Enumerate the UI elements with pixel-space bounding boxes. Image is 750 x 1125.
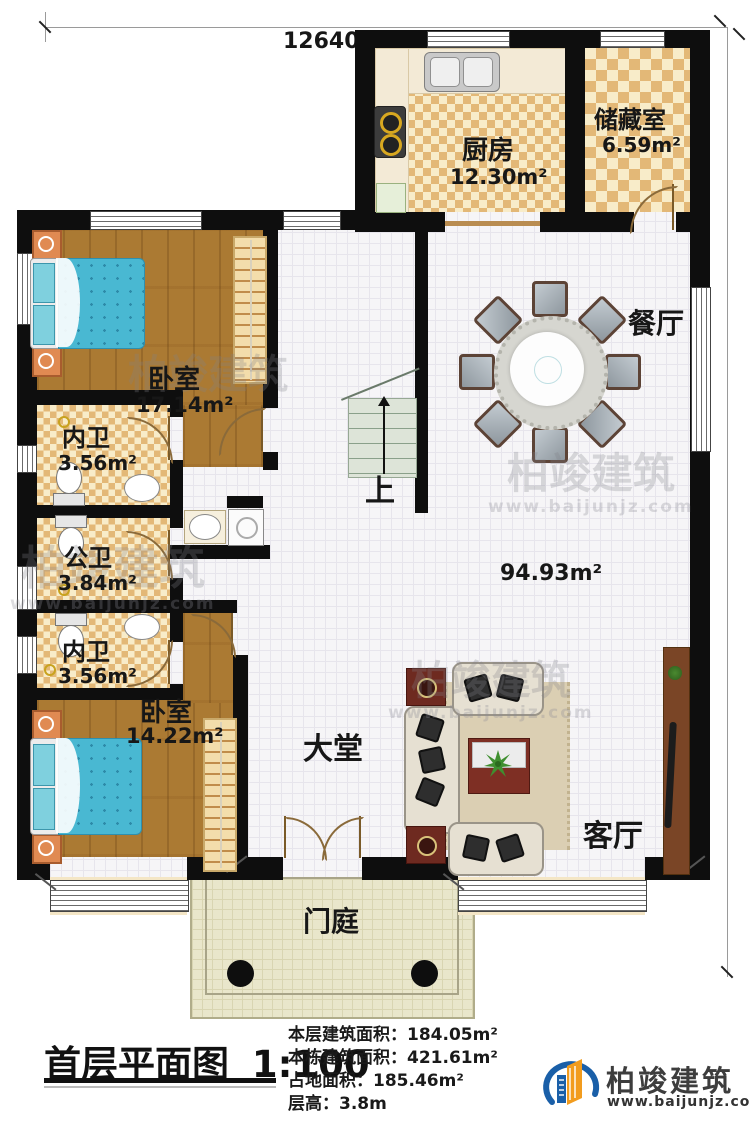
plant-icon [668,666,682,680]
storage-area: 6.59m² [602,135,681,155]
sofa-pillow [462,834,490,862]
toilet [53,493,85,506]
public-bath-area: 3.84m² [58,573,137,593]
vanity-sink [189,514,221,540]
stat-label: 占地面积： [288,1071,373,1091]
wall [170,460,183,528]
stat-label: 本栋建筑面积： [288,1048,407,1068]
dining-table-center [534,356,562,384]
dining-chair [459,354,495,390]
watermark: 柏竣建筑 www.baijunjz.com [388,658,594,724]
brand-logo-icon [540,1052,604,1116]
bathroom-sink [124,614,160,640]
nightstand [32,347,62,377]
porch-column [227,960,254,987]
open-area-label: 94.93m² [500,563,602,585]
sofa-pillow [418,746,446,774]
kitchen-sink-basin [463,57,493,87]
end-table [406,826,446,864]
watermark-url: www.baijunjz.com [10,595,216,615]
watermark-text: 柏竣建筑 [388,658,594,704]
watermark-url: www.baijunjz.com [388,704,594,724]
dimension-top-label: 12640 [283,31,360,53]
stat-value: 185.46m² [373,1071,464,1091]
title-underline-thin [44,1086,276,1088]
floor-plan-canvas: 12640 17640 [0,0,750,1125]
stat-row: 本栋建筑面积：421.61m² [288,1047,498,1070]
bay-window [458,880,647,912]
ensuite2-area: 3.56m² [58,666,137,686]
wall [17,505,183,518]
window [691,287,711,452]
window [90,211,202,230]
stat-value: 421.61m² [407,1048,498,1068]
dining-chair [532,281,568,317]
dining-label: 餐厅 [628,310,684,338]
wall [565,48,585,212]
stairs-arrow-head [378,396,390,406]
bedroom2-label: 卧室 [140,700,192,726]
kitchen-label: 厨房 [462,138,514,164]
watermark-url: www.baijunjz.com [488,498,694,518]
kitchen-sink-basin [430,57,460,87]
storage-label: 储藏室 [594,108,666,132]
ensuite1-label: 内卫 [62,426,110,450]
porch-label: 门庭 [303,908,359,936]
stat-value: 184.05m² [407,1025,498,1045]
dimension-tick [733,28,746,41]
public-bath-label: 公卫 [64,546,112,570]
stove-burner [380,112,402,134]
dining-chair [605,354,641,390]
stairs-up-label: 上 [365,477,395,507]
top-dimension-line [45,27,728,28]
washing-machine-drum [236,517,258,539]
stat-value: 3.8m [339,1094,387,1114]
nightstand [32,834,62,864]
window [600,31,665,48]
window [17,636,37,674]
stat-row: 占地面积：185.46m² [288,1070,498,1093]
wall [540,212,634,232]
bathroom-sink [124,474,160,502]
stat-label: 层高： [288,1094,339,1114]
bedroom1-label: 卧室 [148,367,200,393]
bedroom1-area: 17.14m² [136,395,234,416]
brand-url: www.baijunjz.com [607,1094,750,1110]
stat-label: 本层建筑面积： [288,1025,407,1045]
bed-pillow [33,263,55,303]
nightstand [32,710,62,740]
fridge [376,183,406,213]
title-underline [44,1078,276,1083]
hall-label: 大堂 [303,735,363,765]
ensuite1-area: 3.56m² [58,453,137,473]
stat-row: 本层建筑面积：184.05m² [288,1024,498,1047]
wall [355,30,375,230]
porch-column [411,960,438,987]
nightstand [32,230,62,260]
right-dimension-line [727,27,728,977]
window [17,445,37,473]
wall [676,212,690,232]
watermark-text: 柏竣建筑 [488,450,694,498]
kitchen-threshold [445,221,540,226]
kitchen-area: 12.30m² [450,167,548,188]
dimension-tick [714,15,727,28]
bay-window [50,880,189,912]
bed-pillow [33,788,55,830]
wall [355,212,445,232]
window [427,31,510,48]
stairs-direction-arrow [383,404,385,474]
watermark: 柏竣建筑 www.baijunjz.com [488,450,694,518]
stat-row: 层高：3.8m [288,1093,498,1116]
stove-burner [380,134,402,156]
bedroom2-area: 14.22m² [126,726,224,747]
ensuite2-label: 内卫 [62,640,110,664]
bed-pillow [33,744,55,786]
living-label: 客厅 [583,822,643,852]
wall [227,496,263,508]
shower-icon [44,664,56,676]
plant-icon [482,748,514,780]
bed-pillow [33,305,55,345]
building-stats: 本层建筑面积：184.05m² 本栋建筑面积：421.61m² 占地面积：185… [288,1024,498,1116]
window [283,211,341,230]
